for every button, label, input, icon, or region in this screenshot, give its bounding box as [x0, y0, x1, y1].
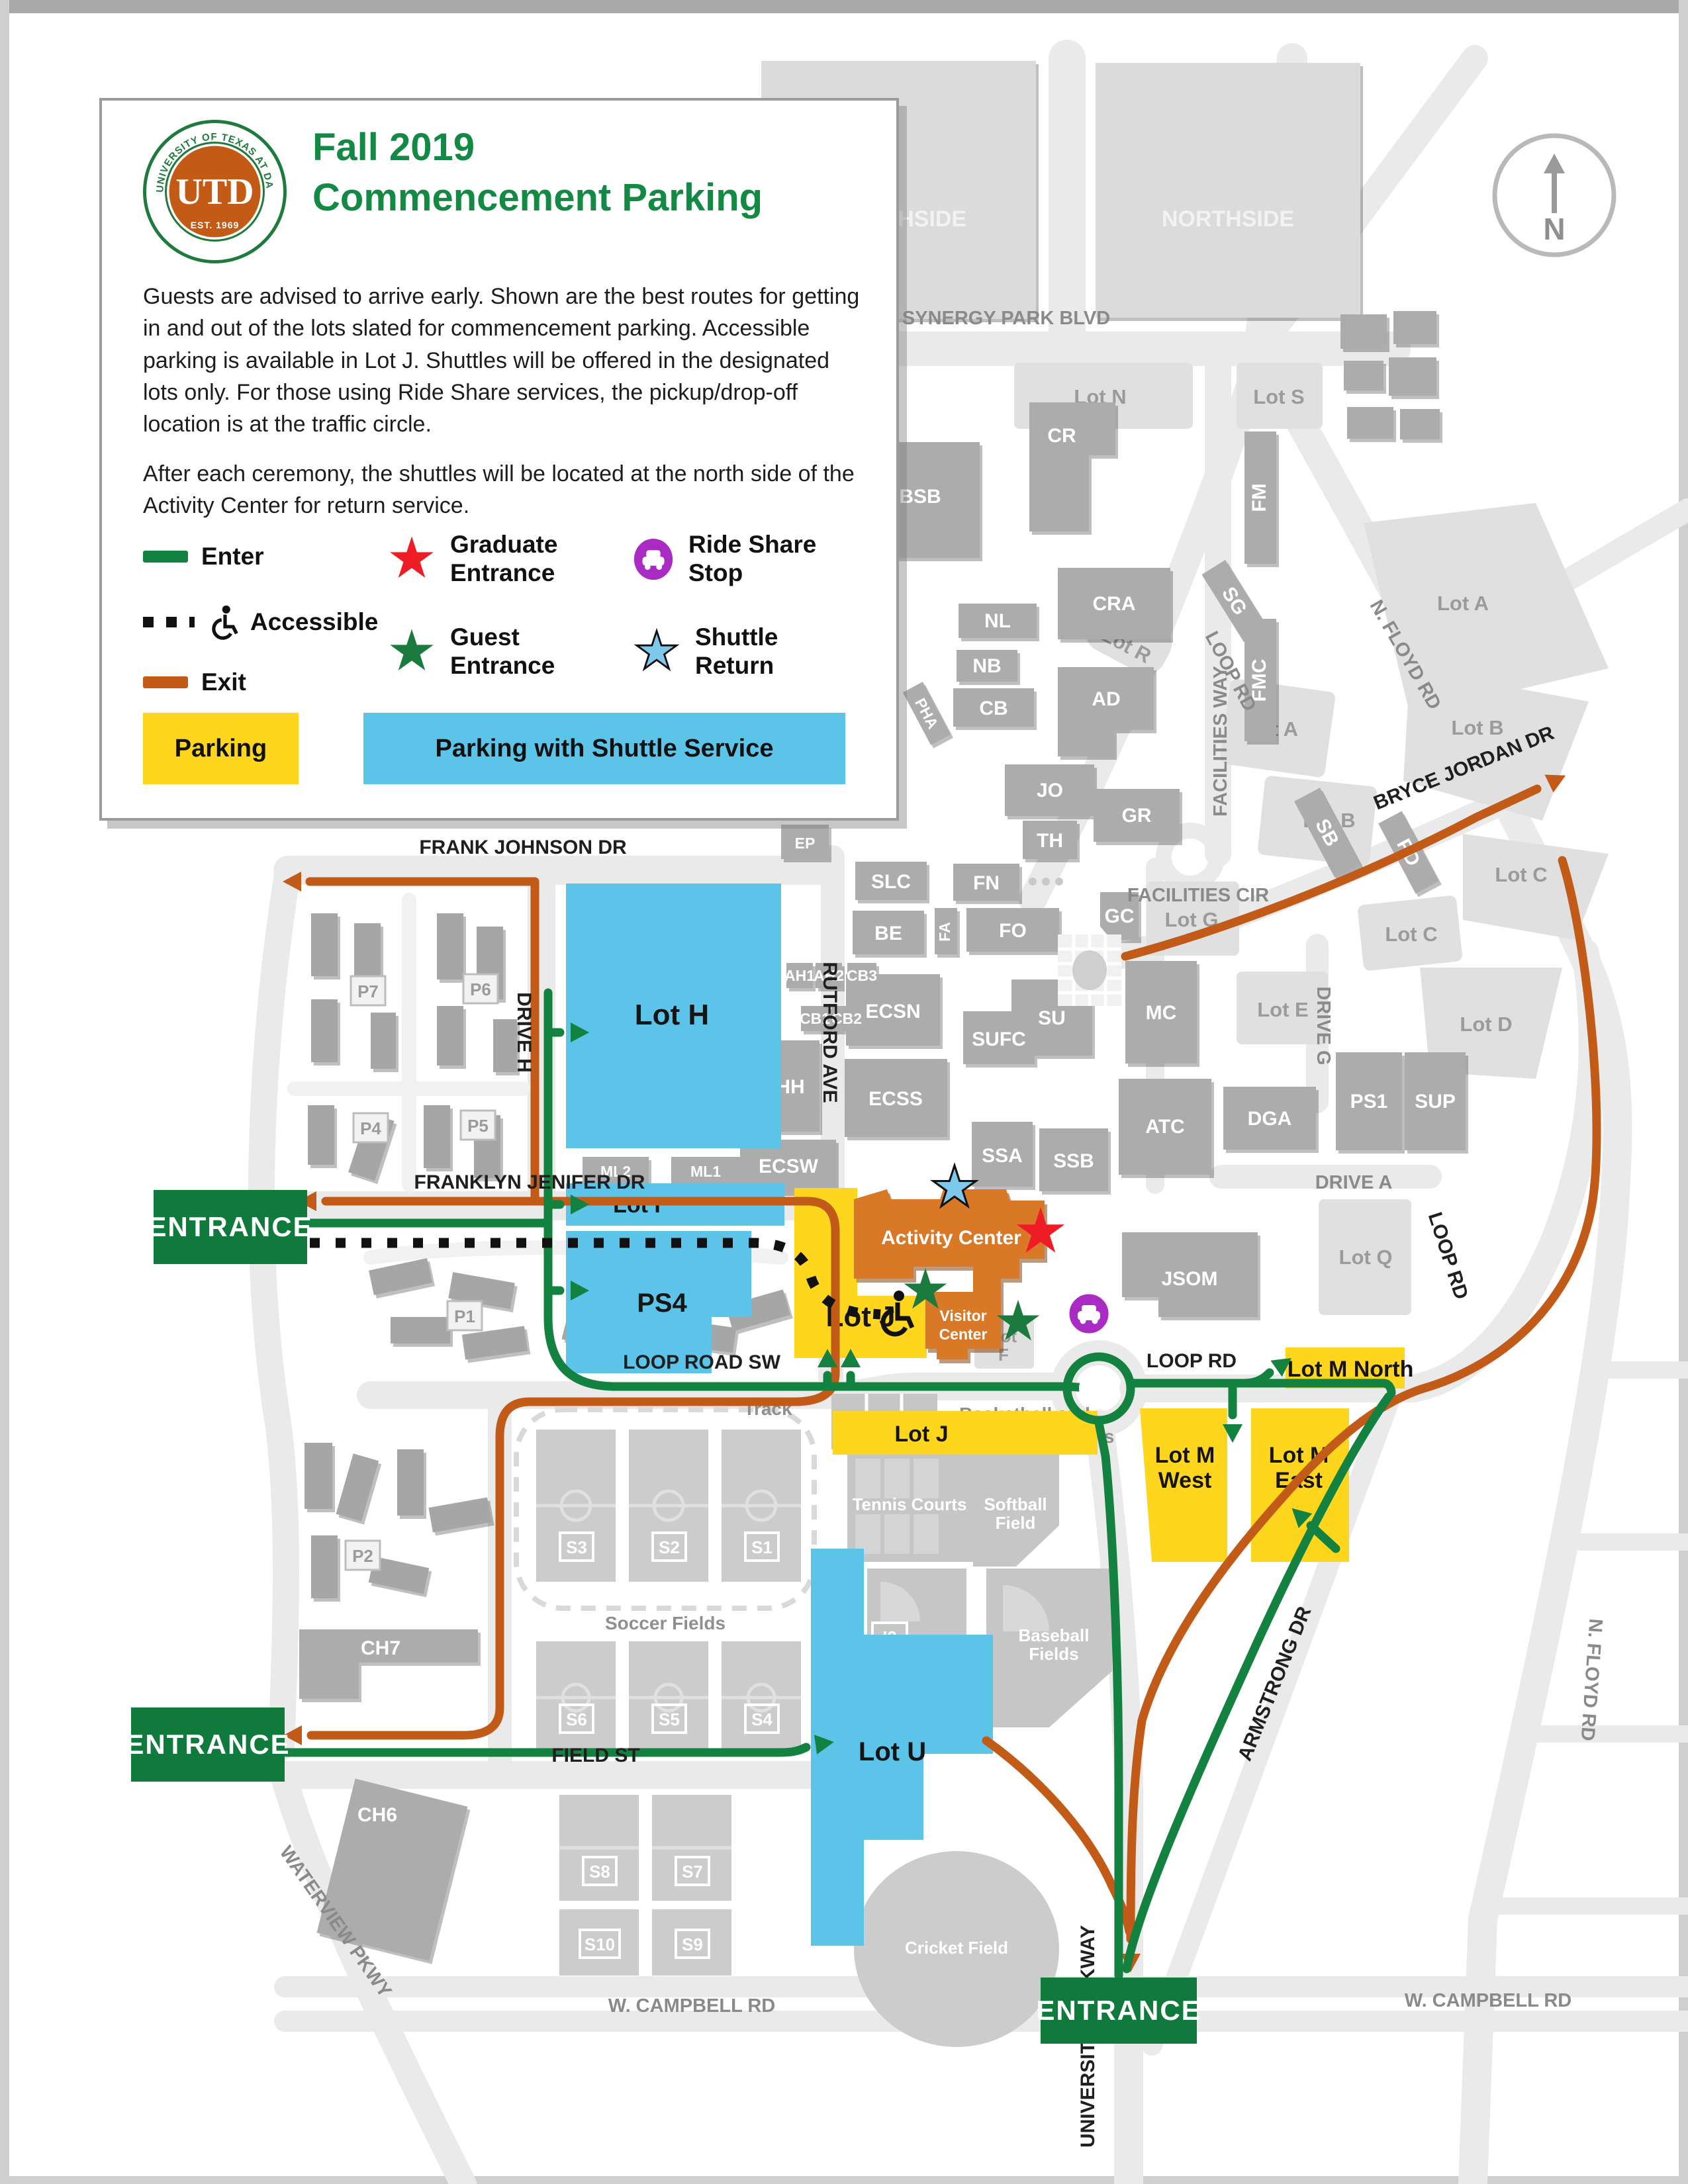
- label-baseball-fields: Baseball: [1019, 1625, 1090, 1645]
- shuttle-return-star-icon: [632, 627, 682, 677]
- label-drive-g: DRIVE G: [1313, 986, 1334, 1065]
- parking-swatch: Parking: [143, 713, 299, 784]
- traffic-circle-center: [1079, 1369, 1119, 1408]
- label-lot-q: Lot Q: [1339, 1246, 1393, 1269]
- label-facilities-cir: FACILITIES CIR: [1127, 885, 1269, 906]
- compass-n-label: N: [1543, 212, 1565, 246]
- legend-item-enter: Enter: [143, 543, 264, 570]
- label-gr: GR: [1122, 805, 1152, 827]
- label-p1: P1: [454, 1306, 475, 1326]
- label-fo: FO: [999, 920, 1027, 942]
- legend-item-graduate-entrance: Graduate Entrance: [387, 531, 557, 587]
- label-field-st: FIELD ST: [551, 1745, 639, 1766]
- label-loop-rd-east: LOOP RD: [1424, 1210, 1472, 1302]
- legend-item-shuttle-return: Shuttle Return: [632, 623, 778, 680]
- enter-line-swatch: [143, 551, 188, 563]
- label-lot-c-2: Lot C: [1385, 923, 1437, 946]
- label-s3: S3: [566, 1537, 587, 1557]
- legend-shuttle-return-label: Return: [695, 652, 774, 679]
- label-nl: NL: [984, 610, 1011, 632]
- label-lot-m-west: West: [1158, 1468, 1212, 1493]
- label-ecss: ECSS: [868, 1088, 923, 1110]
- label-baseball-fields: Fields: [1029, 1644, 1078, 1664]
- map-title-line1: Fall 2019: [312, 128, 475, 167]
- parking-shuttle-swatch: Parking with Shuttle Service: [363, 713, 845, 784]
- label-soccer-fields: Soccer Fields: [605, 1613, 726, 1633]
- label-lot-b: Lot B: [1451, 716, 1503, 739]
- legend-graduate-label: Graduate: [450, 531, 557, 558]
- label-s9: S9: [682, 1934, 703, 1954]
- commencement-parking-map-page: Lot N Lot S Lot A Lot A Lot B Lot B Lot …: [0, 0, 1688, 2184]
- label-ml1: ML1: [690, 1163, 721, 1180]
- label-p2: P2: [352, 1546, 373, 1566]
- label-drive-h: DRIVE H: [513, 992, 535, 1073]
- label-p4: P4: [360, 1118, 381, 1138]
- legend-ride-share-label: Stop: [688, 559, 743, 586]
- label-cr: CR: [1047, 425, 1076, 447]
- shuttle-note-paragraph: After each ceremony, the shuttles will b…: [143, 458, 862, 522]
- label-s2: S2: [659, 1537, 680, 1557]
- label-sup: SUP: [1415, 1091, 1456, 1113]
- label-nb: NB: [972, 655, 1001, 677]
- parking-swatch-label: Parking: [175, 735, 267, 763]
- exit-line-swatch: [143, 676, 188, 688]
- label-n-floyd-rd-bottom: N. FLOYD RD: [1577, 1618, 1607, 1742]
- label-cb3: CB3: [847, 967, 877, 984]
- label-s5: S5: [659, 1709, 680, 1729]
- trellis-plaza: [1058, 934, 1121, 1006]
- label-ssa: SSA: [982, 1145, 1023, 1167]
- label-cricket-field: Cricket Field: [905, 1938, 1008, 1958]
- label-s7: S7: [682, 1862, 703, 1882]
- label-slc: SLC: [871, 871, 911, 893]
- label-drive-a: DRIVE A: [1315, 1172, 1393, 1193]
- label-fn: FN: [973, 872, 1000, 894]
- label-s10: S10: [585, 1934, 615, 1954]
- label-ecsw: ECSW: [759, 1156, 819, 1177]
- label-be: BE: [874, 923, 902, 944]
- accessible-line-swatch: [143, 617, 195, 627]
- utd-seal: THE UNIVERSITY OF TEXAS AT DALLAS UTD ES…: [140, 117, 289, 266]
- label-activity-center: Activity Center: [881, 1227, 1021, 1249]
- label-ssb: SSB: [1053, 1150, 1094, 1172]
- label-p7: P7: [357, 981, 379, 1001]
- guest-entrance-star-icon: [387, 627, 437, 677]
- label-lot-c: Lot C: [1495, 863, 1547, 886]
- graduate-entrance-star-icon: [387, 534, 437, 584]
- label-ch7: CH7: [361, 1637, 400, 1659]
- label-lot-h: Lot H: [635, 999, 709, 1031]
- label-loop-road-sw: LOOP ROAD SW: [623, 1351, 780, 1373]
- label-rutford-ave: RUTFORD AVE: [819, 962, 841, 1103]
- label-jo: JO: [1037, 780, 1063, 801]
- label-fa: FA: [936, 922, 953, 941]
- label-bsb: BSB: [899, 486, 941, 508]
- label-lot-u: Lot U: [859, 1737, 926, 1766]
- label-s8: S8: [589, 1862, 610, 1882]
- label-sufc: SUFC: [972, 1028, 1026, 1050]
- label-ps1: PS1: [1350, 1091, 1388, 1113]
- label-loop-rd-circle: LOOP RD: [1147, 1350, 1237, 1372]
- seal-monogram: UTD: [175, 171, 254, 212]
- label-lot-m-west: Lot M: [1155, 1443, 1215, 1468]
- legend-enter-label: Enter: [201, 543, 264, 570]
- label-ad: AD: [1092, 688, 1120, 710]
- legend-panel: THE UNIVERSITY OF TEXAS AT DALLAS UTD ES…: [99, 98, 899, 821]
- legend-item-accessible: Accessible: [143, 602, 378, 642]
- label-lot-a: Lot A: [1437, 592, 1489, 615]
- label-visitor-center: Visitor: [939, 1307, 986, 1324]
- map-title-line2: Commencement Parking: [312, 179, 763, 217]
- label-visitor-center: Center: [939, 1326, 988, 1343]
- legend-shuttle-return-label: Shuttle: [695, 623, 778, 651]
- label-ep: EP: [795, 835, 816, 852]
- label-w-campbell-rd-west: W. CAMPBELL RD: [608, 1995, 775, 2017]
- entrance-box-southwest: ENTRANCE: [125, 1729, 290, 1760]
- label-softball-field: Field: [996, 1513, 1036, 1533]
- label-s1: S1: [751, 1537, 773, 1557]
- ride-share-icon: [632, 537, 675, 581]
- facility-blocks: [1340, 311, 1440, 439]
- legend-guest-label: Entrance: [450, 652, 555, 679]
- label-northside-e: NORTHSIDE: [1162, 206, 1294, 232]
- label-franklyn-jenifer-dr: FRANKLYN JENIFER DR: [414, 1171, 645, 1193]
- label-p5: P5: [467, 1116, 489, 1136]
- legend-graduate-label: Entrance: [450, 559, 555, 586]
- label-s4: S4: [751, 1709, 773, 1729]
- label-frank-johnson-dr: FRANK JOHNSON DR: [419, 837, 627, 858]
- compass-north-icon: N: [1495, 136, 1614, 255]
- dots-decoration: [1029, 878, 1063, 886]
- label-s6: S6: [566, 1709, 587, 1729]
- label-atc: ATC: [1145, 1116, 1184, 1138]
- legend-item-exit: Exit: [143, 668, 246, 696]
- label-ah1: AH1: [784, 967, 815, 984]
- label-ch6: CH6: [357, 1804, 397, 1826]
- label-ps4: PS4: [637, 1289, 687, 1318]
- label-mc: MC: [1146, 1002, 1177, 1024]
- legend-guest-label: Guest: [450, 623, 520, 651]
- legend-ride-share-label: Ride Share: [688, 531, 816, 558]
- seal-est-text: EST. 1969: [191, 220, 240, 230]
- entrance-box-west: ENTRANCE: [148, 1211, 312, 1242]
- label-jsom: JSOM: [1161, 1268, 1217, 1290]
- label-lot-j-strip: Lot J: [894, 1422, 948, 1447]
- label-lot-s: Lot S: [1253, 385, 1305, 408]
- label-lot-m-north: Lot M North: [1288, 1357, 1414, 1382]
- label-gc: GC: [1105, 905, 1135, 927]
- label-ecsn: ECSN: [865, 1001, 920, 1023]
- legend-item-guest-entrance: Guest Entrance: [387, 623, 555, 680]
- label-lot-d: Lot D: [1460, 1013, 1512, 1036]
- label-su: SU: [1038, 1007, 1066, 1029]
- label-th: TH: [1037, 830, 1063, 852]
- wheelchair-icon: [208, 602, 242, 642]
- label-tennis-courts: Tennis Courts: [853, 1494, 967, 1514]
- entrance-box-south: ENTRANCE: [1036, 1995, 1201, 2026]
- label-cb: CB: [979, 698, 1008, 719]
- parking-shuttle-swatch-label: Parking with Shuttle Service: [435, 735, 773, 763]
- ride-share-stop-marker: [1068, 1293, 1109, 1334]
- legend-accessible-label: Accessible: [250, 608, 378, 636]
- label-cra: CRA: [1093, 593, 1136, 615]
- label-dga: DGA: [1248, 1108, 1292, 1130]
- legend-item-ride-share: Ride Share Stop: [632, 531, 816, 587]
- label-p6: P6: [470, 979, 491, 999]
- label-softball-field: Softball: [984, 1494, 1047, 1514]
- label-fm: FM: [1248, 483, 1270, 512]
- legend-exit-label: Exit: [201, 668, 246, 696]
- label-lot-e: Lot E: [1257, 998, 1309, 1021]
- label-w-campbell-rd-east: W. CAMPBELL RD: [1405, 1990, 1571, 2011]
- intro-paragraph: Guests are advised to arrive early. Show…: [143, 281, 862, 440]
- label-synergy-park-blvd: SYNERGY PARK BLVD: [902, 308, 1110, 329]
